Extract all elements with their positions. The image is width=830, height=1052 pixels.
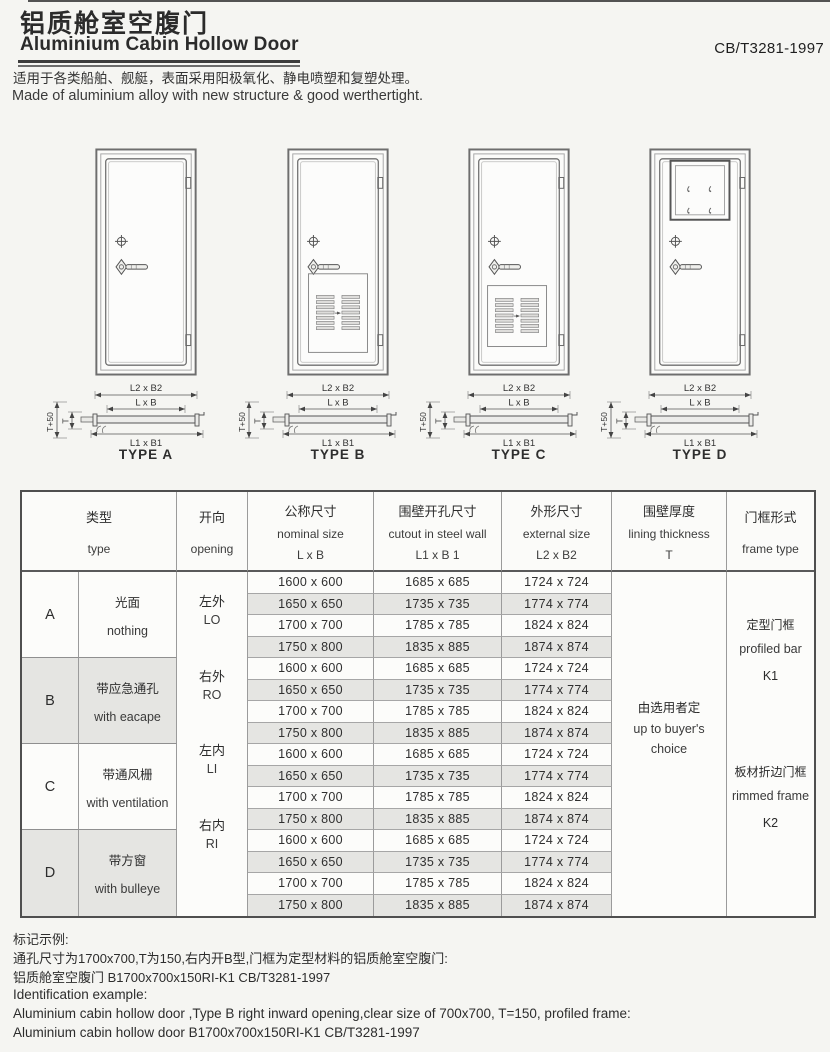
nominal-size-cell: 1650 x 650: [248, 852, 374, 874]
nominal-size-cell: 1750 x 800: [248, 895, 374, 917]
external-size-cell: 1874 x 874: [502, 895, 612, 917]
label: LI: [207, 762, 217, 776]
cutout-size-cell: 1735 x 735: [374, 852, 502, 874]
label: D: [45, 865, 55, 881]
note-zh-line2: 铝质舱室空腹门 B1700x700x150RI-K1 CB/T3281-1997: [13, 967, 330, 986]
label: with eacape: [94, 710, 161, 724]
door-diagram-type-D: L2 x B2L x BL1 x B1T+50TTYPE D: [604, 145, 796, 467]
label: nothing: [107, 624, 148, 638]
nominal-size-cell: 1600 x 600: [248, 830, 374, 852]
svg-text:L2 x B2: L2 x B2: [503, 383, 535, 394]
cutout-size-cell: 1785 x 785: [374, 873, 502, 895]
nominal-size-cell: 1750 x 800: [248, 723, 374, 745]
label: LO: [204, 613, 221, 627]
col-header-cutout: 围壁开孔尺寸cutout in steel wallL1 x B 1: [374, 492, 502, 572]
external-size-cell: 1824 x 824: [502, 787, 612, 809]
label: L2 x B2: [536, 548, 577, 562]
external-size-cell: 1724 x 724: [502, 744, 612, 766]
type-label: TYPE B: [242, 447, 434, 462]
cutout-size-cell: 1835 x 885: [374, 895, 502, 917]
nominal-size-cell: 1600 x 600: [248, 572, 374, 594]
catalog-page: 铝质舱室空腹门 Aluminium Cabin Hollow Door CB/T…: [0, 0, 830, 1052]
nominal-size-cell: 1750 x 800: [248, 637, 374, 659]
cutout-size-cell: 1785 x 785: [374, 701, 502, 723]
svg-text:L x B: L x B: [689, 398, 710, 409]
external-size-cell: 1874 x 874: [502, 809, 612, 831]
label: T: [665, 548, 672, 562]
type-label: TYPE D: [604, 447, 796, 462]
opening-column: 左外LO右外RO左内LI右内RI: [177, 572, 248, 916]
external-size-cell: 1724 x 724: [502, 830, 612, 852]
label: 带通风栅: [102, 764, 152, 783]
label: RO: [203, 688, 222, 702]
svg-text:T: T: [61, 418, 71, 423]
label: 由选用者定: [638, 697, 701, 716]
label: K1: [763, 669, 778, 683]
svg-text:T: T: [434, 418, 444, 423]
label: L1 x B 1: [415, 548, 459, 562]
cutout-size-cell: 1735 x 735: [374, 680, 502, 702]
type-desc-D: 带方窗with bulleye: [79, 830, 177, 916]
cutout-size-cell: 1735 x 735: [374, 594, 502, 616]
cutout-size-cell: 1835 x 885: [374, 723, 502, 745]
label: 带方窗: [109, 850, 147, 869]
svg-text:L x B: L x B: [327, 398, 348, 409]
external-size-cell: 1824 x 824: [502, 615, 612, 637]
col-header-frame: 门框形式frame type: [727, 492, 814, 572]
cutout-size-cell: 1685 x 685: [374, 830, 502, 852]
label: cutout in steel wall: [388, 527, 486, 541]
label: L x B: [297, 548, 324, 562]
external-size-cell: 1724 x 724: [502, 658, 612, 680]
label: 门框形式: [744, 507, 796, 526]
door-drawing: [467, 148, 571, 376]
nominal-size-cell: 1700 x 700: [248, 787, 374, 809]
cutout-size-cell: 1685 x 685: [374, 744, 502, 766]
external-size-cell: 1724 x 724: [502, 572, 612, 594]
type-desc-A: 光面nothing: [79, 572, 177, 658]
opening-option-LO: 左外LO: [199, 591, 225, 627]
label: frame type: [742, 542, 799, 556]
nominal-size-cell: 1650 x 650: [248, 594, 374, 616]
external-size-cell: 1774 x 774: [502, 594, 612, 616]
type-label: TYPE A: [50, 447, 242, 462]
label: 开向: [199, 507, 225, 526]
label: 右外: [199, 666, 225, 685]
svg-text:L2 x B2: L2 x B2: [130, 383, 162, 394]
cutout-size-cell: 1785 x 785: [374, 787, 502, 809]
external-size-cell: 1824 x 824: [502, 873, 612, 895]
note-zh-title: 标记示例:: [13, 929, 69, 948]
type-label: TYPE C: [423, 447, 615, 462]
svg-text:T+50: T+50: [418, 412, 428, 432]
cutout-size-cell: 1735 x 735: [374, 766, 502, 788]
label: external size: [523, 527, 590, 541]
label: 公称尺寸: [284, 501, 336, 520]
svg-text:L x B: L x B: [135, 398, 156, 409]
cutout-size-cell: 1835 x 885: [374, 809, 502, 831]
label: 左内: [199, 740, 225, 759]
external-size-cell: 1874 x 874: [502, 723, 612, 745]
cutout-size-cell: 1835 x 885: [374, 637, 502, 659]
col-header-external: 外形尺寸external sizeL2 x B2: [502, 492, 612, 572]
type-desc-B: 带应急通孔with eacape: [79, 658, 177, 744]
type-letter-C: C: [22, 744, 79, 830]
external-size-cell: 1824 x 824: [502, 701, 612, 723]
label: 外形尺寸: [530, 501, 582, 520]
svg-text:L2 x B2: L2 x B2: [322, 383, 354, 394]
label: choice: [651, 742, 687, 756]
label: 围壁厚度: [643, 501, 695, 520]
door-diagram-type-B: L2 x B2L x BL1 x B1T+50TTYPE B: [242, 145, 434, 467]
svg-text:T+50: T+50: [237, 412, 247, 432]
label: nominal size: [277, 527, 344, 541]
col-header-nominal: 公称尺寸nominal sizeL x B: [248, 492, 374, 572]
door-diagrams: L2 x B2L x BL1 x B1T+50TTYPE AL2 x B2L x…: [0, 0, 830, 470]
door-diagram-type-A: L2 x B2L x BL1 x B1T+50TTYPE A: [50, 145, 242, 467]
label: K2: [763, 816, 778, 830]
nominal-size-cell: 1700 x 700: [248, 873, 374, 895]
frame-option-K1: 定型门框profiled barK1: [739, 616, 802, 683]
svg-text:T+50: T+50: [599, 412, 609, 432]
label: 定型门框: [746, 616, 794, 633]
nominal-size-cell: 1600 x 600: [248, 744, 374, 766]
type-desc-C: 带通风栅with ventilation: [79, 744, 177, 830]
label: 左外: [199, 591, 225, 610]
frame-type-cell: 定型门框profiled barK1板材折边门框rimmed frameK2: [727, 572, 814, 916]
label: 板材折边门框: [734, 763, 806, 780]
label: profiled bar: [739, 642, 802, 656]
door-drawing: [94, 148, 198, 376]
opening-option-RO: 右外RO: [199, 666, 225, 702]
note-zh-line1: 通孔尺寸为1700x700,T为150,右内开B型,门框为定型材料的铝质舱室空腹…: [13, 948, 448, 967]
label: 右内: [199, 815, 225, 834]
note-en-line1: Aluminium cabin hollow door ,Type B righ…: [13, 1006, 631, 1021]
spec-table: 类型type开向opening公称尺寸nominal sizeL x B围壁开孔…: [20, 490, 816, 918]
external-size-cell: 1774 x 774: [502, 680, 612, 702]
label: type: [88, 542, 111, 556]
cutout-size-cell: 1685 x 685: [374, 658, 502, 680]
cutout-size-cell: 1785 x 785: [374, 615, 502, 637]
opening-option-RI: 右内RI: [199, 815, 225, 851]
nominal-size-cell: 1700 x 700: [248, 701, 374, 723]
svg-text:T+50: T+50: [45, 412, 55, 432]
label: 带应急通孔: [96, 678, 159, 697]
note-en-title: Identification example:: [13, 987, 147, 1002]
door-diagram-type-C: L2 x B2L x BL1 x B1T+50TTYPE C: [423, 145, 615, 467]
label: lining thickness: [628, 527, 709, 541]
label: 光面: [115, 592, 140, 611]
external-size-cell: 1774 x 774: [502, 766, 612, 788]
label: 类型: [86, 507, 112, 526]
nominal-size-cell: 1650 x 650: [248, 680, 374, 702]
section-drawing: L2 x B2L x BL1 x B1T+50T: [237, 382, 429, 450]
svg-text:T: T: [253, 418, 263, 423]
nominal-size-cell: 1700 x 700: [248, 615, 374, 637]
cutout-size-cell: 1685 x 685: [374, 572, 502, 594]
svg-text:T: T: [615, 418, 625, 423]
door-drawing: [286, 148, 390, 376]
col-header-type: 类型type: [22, 492, 177, 572]
label: with bulleye: [95, 882, 160, 896]
label: RI: [206, 837, 219, 851]
note-en-line2: Aluminium cabin hollow door B1700x700x15…: [13, 1025, 420, 1040]
type-letter-D: D: [22, 830, 79, 916]
label: B: [45, 693, 55, 709]
external-size-cell: 1774 x 774: [502, 852, 612, 874]
nominal-size-cell: 1650 x 650: [248, 766, 374, 788]
col-header-lining: 围壁厚度lining thicknessT: [612, 492, 727, 572]
label: A: [45, 607, 55, 623]
type-letter-A: A: [22, 572, 79, 658]
section-drawing: L2 x B2L x BL1 x B1T+50T: [418, 382, 610, 450]
lining-thickness-cell: 由选用者定up to buyer'schoice: [612, 572, 727, 916]
label: opening: [191, 542, 234, 556]
col-header-opening: 开向opening: [177, 492, 248, 572]
opening-option-LI: 左内LI: [199, 740, 225, 776]
door-drawing: [648, 148, 752, 376]
svg-text:L2 x B2: L2 x B2: [684, 383, 716, 394]
label: C: [45, 779, 55, 795]
section-drawing: L2 x B2L x BL1 x B1T+50T: [45, 382, 237, 450]
svg-text:L x B: L x B: [508, 398, 529, 409]
type-letter-B: B: [22, 658, 79, 744]
label: rimmed frame: [732, 789, 809, 803]
external-size-cell: 1874 x 874: [502, 637, 612, 659]
nominal-size-cell: 1750 x 800: [248, 809, 374, 831]
section-drawing: L2 x B2L x BL1 x B1T+50T: [599, 382, 791, 450]
label: up to buyer's: [633, 722, 704, 736]
label: with ventilation: [87, 796, 169, 810]
label: 围壁开孔尺寸: [398, 501, 476, 520]
frame-option-K2: 板材折边门框rimmed frameK2: [732, 763, 809, 830]
nominal-size-cell: 1600 x 600: [248, 658, 374, 680]
